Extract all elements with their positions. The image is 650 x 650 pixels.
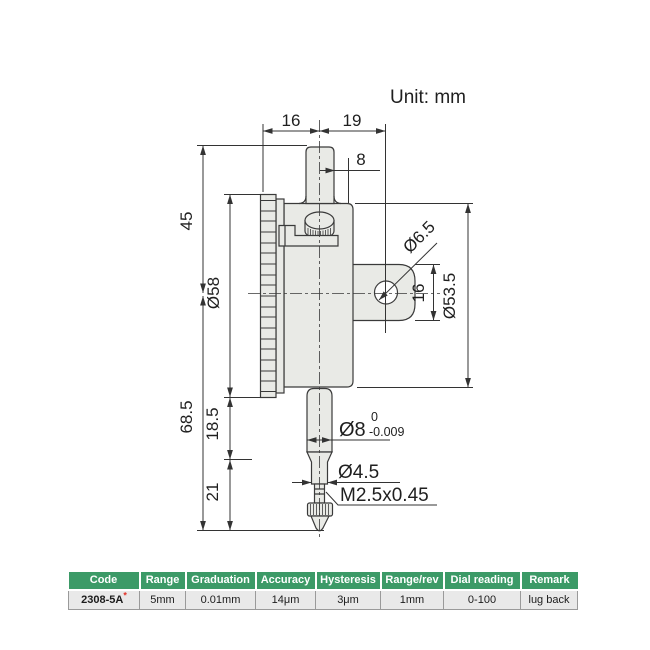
dim-45: 45 <box>177 212 196 231</box>
cell-hysteresis: 3μm <box>316 590 381 610</box>
dim-d535: Ø53.5 <box>440 273 459 319</box>
cell-range: 5mm <box>140 590 186 610</box>
spec-table-header-row: Code Range Graduation Accuracy Hysteresi… <box>69 572 578 590</box>
cell-range-rev: 1mm <box>381 590 444 610</box>
code-value: 2308-5A <box>81 594 123 606</box>
header-remark: Remark <box>521 572 578 590</box>
cell-accuracy: 14μm <box>256 590 316 610</box>
product-drawing-page: Unit: mm 16 19 8 45 Ø58 68.5 18.5 21 Ø6.… <box>0 0 650 650</box>
dim-top-19: 19 <box>343 111 362 130</box>
header-code: Code <box>69 572 140 590</box>
header-range-rev: Range/rev <box>381 572 444 590</box>
dim-tol-upper: 0 <box>371 410 378 424</box>
dim-d58: Ø58 <box>204 277 223 309</box>
dim-thread: M2.5x0.45 <box>340 485 429 506</box>
dim-18-5: 18.5 <box>203 407 222 440</box>
dim-d65: Ø6.5 <box>399 217 438 256</box>
dim-21: 21 <box>203 483 222 502</box>
stem <box>306 147 334 204</box>
dim-lug-16: 16 <box>409 284 428 303</box>
dim-spindle-d8: Ø8 <box>339 419 366 441</box>
code-star: * <box>123 590 127 600</box>
header-hysteresis: Hysteresis <box>316 572 381 590</box>
header-range: Range <box>140 572 186 590</box>
unit-label: Unit: mm <box>390 87 466 108</box>
cell-dial-reading: 0-100 <box>444 590 521 610</box>
cell-remark: lug back <box>521 590 578 610</box>
cell-code: 2308-5A* <box>69 590 140 610</box>
header-graduation: Graduation <box>186 572 256 590</box>
dim-rod-d45: Ø4.5 <box>338 462 379 483</box>
dim-top-16: 16 <box>282 111 301 130</box>
dim-tol-lower: -0.009 <box>369 425 404 439</box>
dim-68-5: 68.5 <box>177 400 196 433</box>
cell-graduation: 0.01mm <box>186 590 256 610</box>
dial-indicator-technical-drawing: Unit: mm 16 19 8 45 Ø58 68.5 18.5 21 Ø6.… <box>0 0 650 570</box>
header-accuracy: Accuracy <box>256 572 316 590</box>
spec-table-data-row: 2308-5A* 5mm 0.01mm 14μm 3μm 1mm 0-100 l… <box>69 590 578 610</box>
spec-table: Code Range Graduation Accuracy Hysteresi… <box>68 572 578 610</box>
contact-point <box>311 516 329 531</box>
header-dial-reading: Dial reading <box>444 572 521 590</box>
dim-stem-8: 8 <box>356 150 365 169</box>
